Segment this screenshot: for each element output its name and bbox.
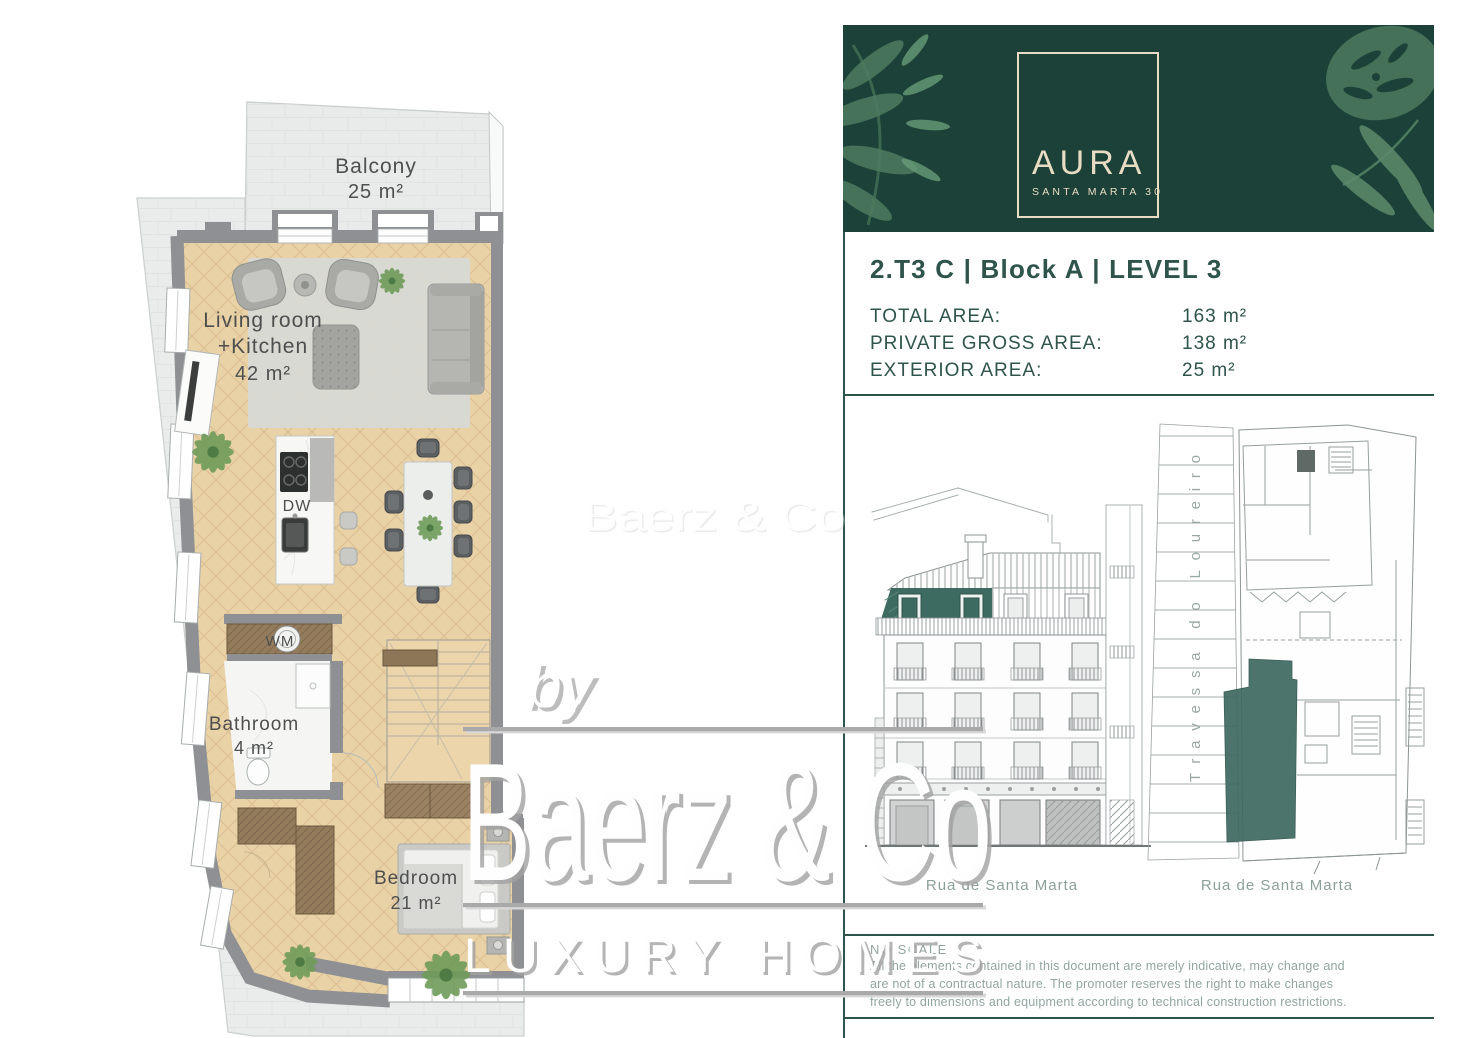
brand-logo-subtitle: SANTA MARTA 30 xyxy=(1032,186,1163,198)
bathroom-label: Bathroom xyxy=(209,714,299,735)
area-table: TOTAL AREA: 163 m² PRIVATE GROSS AREA: 1… xyxy=(870,306,1430,387)
bedroom-area-label: 21 m² xyxy=(390,893,441,913)
area-value: 25 m² xyxy=(1182,360,1236,382)
dishwasher-label: DW xyxy=(283,498,312,515)
site-plan: Travessa do Loureiro xyxy=(1148,424,1424,894)
siteplan-caption: Rua de Santa Marta xyxy=(1201,877,1353,894)
bathroom-area-label: 4 m² xyxy=(234,738,274,758)
brand-logo: AURA SANTA MARTA 30 xyxy=(1017,52,1159,218)
washer-label: WM xyxy=(266,633,295,650)
stairs xyxy=(383,640,490,782)
living-label: Living room xyxy=(203,309,323,332)
stool xyxy=(340,512,357,529)
counter xyxy=(310,438,334,502)
technical-drawings: Rua de Santa Marta Travessa do Loureiro xyxy=(843,400,1434,932)
disclaimer-line: All the elements contained in this docum… xyxy=(870,957,1424,975)
elevation-caption: Rua de Santa Marta xyxy=(926,877,1078,894)
balcony-label: Balcony xyxy=(335,155,417,178)
disclaimer-title: NO SCALE xyxy=(870,942,1424,957)
area-label: TOTAL AREA: xyxy=(870,306,1001,327)
brand-logo-title: AURA xyxy=(1032,146,1163,180)
balcony-area-label: 25 m² xyxy=(348,181,404,203)
shower xyxy=(296,664,330,708)
disclaimer-box: NO SCALE All the elements contained in t… xyxy=(843,934,1434,1019)
armchair xyxy=(323,257,380,312)
separator-line xyxy=(843,394,1434,396)
stair-rail xyxy=(383,650,437,666)
disclaimer-line: freely to dimensions and equipment accor… xyxy=(870,993,1424,1011)
unit-title: 2.T3 C | Block A | LEVEL 3 xyxy=(870,254,1430,285)
floor-plan: Balcony 25 m² Living room +Kitchen 42 m²… xyxy=(0,0,860,1038)
bookshelf xyxy=(385,784,477,818)
living-area-label: 42 m² xyxy=(235,363,291,385)
leaf-right-icon xyxy=(1314,25,1434,232)
building-elevation: Rua de Santa Marta xyxy=(866,488,1150,894)
area-value: 138 m² xyxy=(1182,333,1247,355)
bedroom-furniture xyxy=(398,824,510,954)
brand-header-card: AURA SANTA MARTA 30 xyxy=(843,25,1434,232)
area-row-total: TOTAL AREA: 163 m² xyxy=(870,306,1430,333)
area-label: PRIVATE GROSS AREA: xyxy=(870,333,1103,354)
stool xyxy=(340,548,357,565)
sofa xyxy=(428,284,484,394)
area-row-exterior: EXTERIOR AREA: 25 m² xyxy=(870,360,1430,387)
area-value: 163 m² xyxy=(1182,306,1247,328)
leaf-left-icon xyxy=(843,31,950,227)
disclaimer-line: are not of a contractual nature. The pro… xyxy=(870,975,1424,993)
brochure-page: Balcony 25 m² Living room +Kitchen 42 m²… xyxy=(0,0,1458,1038)
area-row-private: PRIVATE GROSS AREA: 138 m² xyxy=(870,333,1430,360)
bedroom-label: Bedroom xyxy=(374,868,458,889)
living-label-2: +Kitchen xyxy=(218,335,308,358)
area-label: EXTERIOR AREA: xyxy=(870,360,1042,381)
